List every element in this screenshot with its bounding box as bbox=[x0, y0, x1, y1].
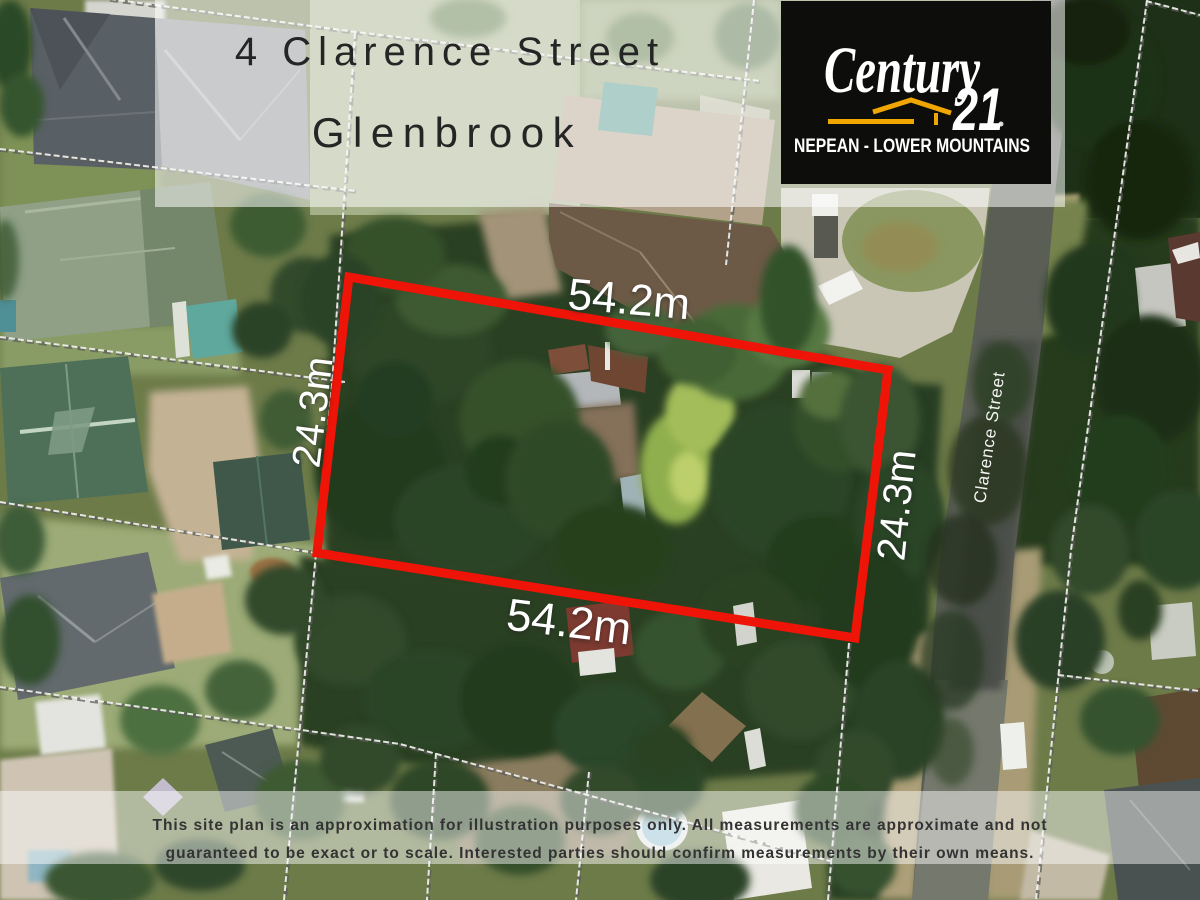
svg-text:4 Clarence Street: 4 Clarence Street bbox=[235, 30, 665, 74]
svg-text:Glenbrook: Glenbrook bbox=[312, 109, 582, 156]
svg-text:21: 21 bbox=[952, 76, 1003, 143]
svg-text:guaranteed to be exact or to s: guaranteed to be exact or to scale. Inte… bbox=[166, 845, 1035, 862]
svg-text:NEPEAN - LOWER MOUNTAINS: NEPEAN - LOWER MOUNTAINS bbox=[794, 136, 1030, 157]
svg-text:This site plan is an approxima: This site plan is an approximation for i… bbox=[153, 817, 1048, 834]
